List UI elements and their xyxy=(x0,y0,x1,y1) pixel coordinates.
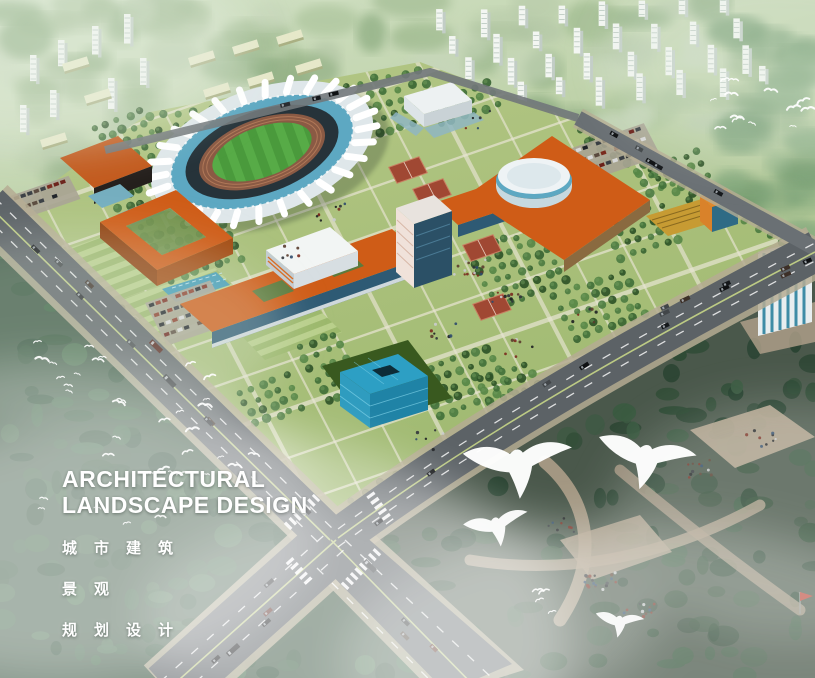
tagline-cn-3: 规划设计 xyxy=(62,621,308,641)
tagline-cn-2: 景观 xyxy=(62,580,308,600)
title-line-2: LANDSCAPE DESIGN xyxy=(62,492,308,518)
tagline-cn-1: 城市建筑 xyxy=(62,539,308,559)
aerial-rendering-poster: ARCHITECTURAL LANDSCAPE DESIGN 城市建筑 景观 规… xyxy=(0,0,815,678)
title-line-1: ARCHITECTURAL xyxy=(62,466,308,492)
title-block: ARCHITECTURAL LANDSCAPE DESIGN 城市建筑 景观 规… xyxy=(62,466,308,641)
